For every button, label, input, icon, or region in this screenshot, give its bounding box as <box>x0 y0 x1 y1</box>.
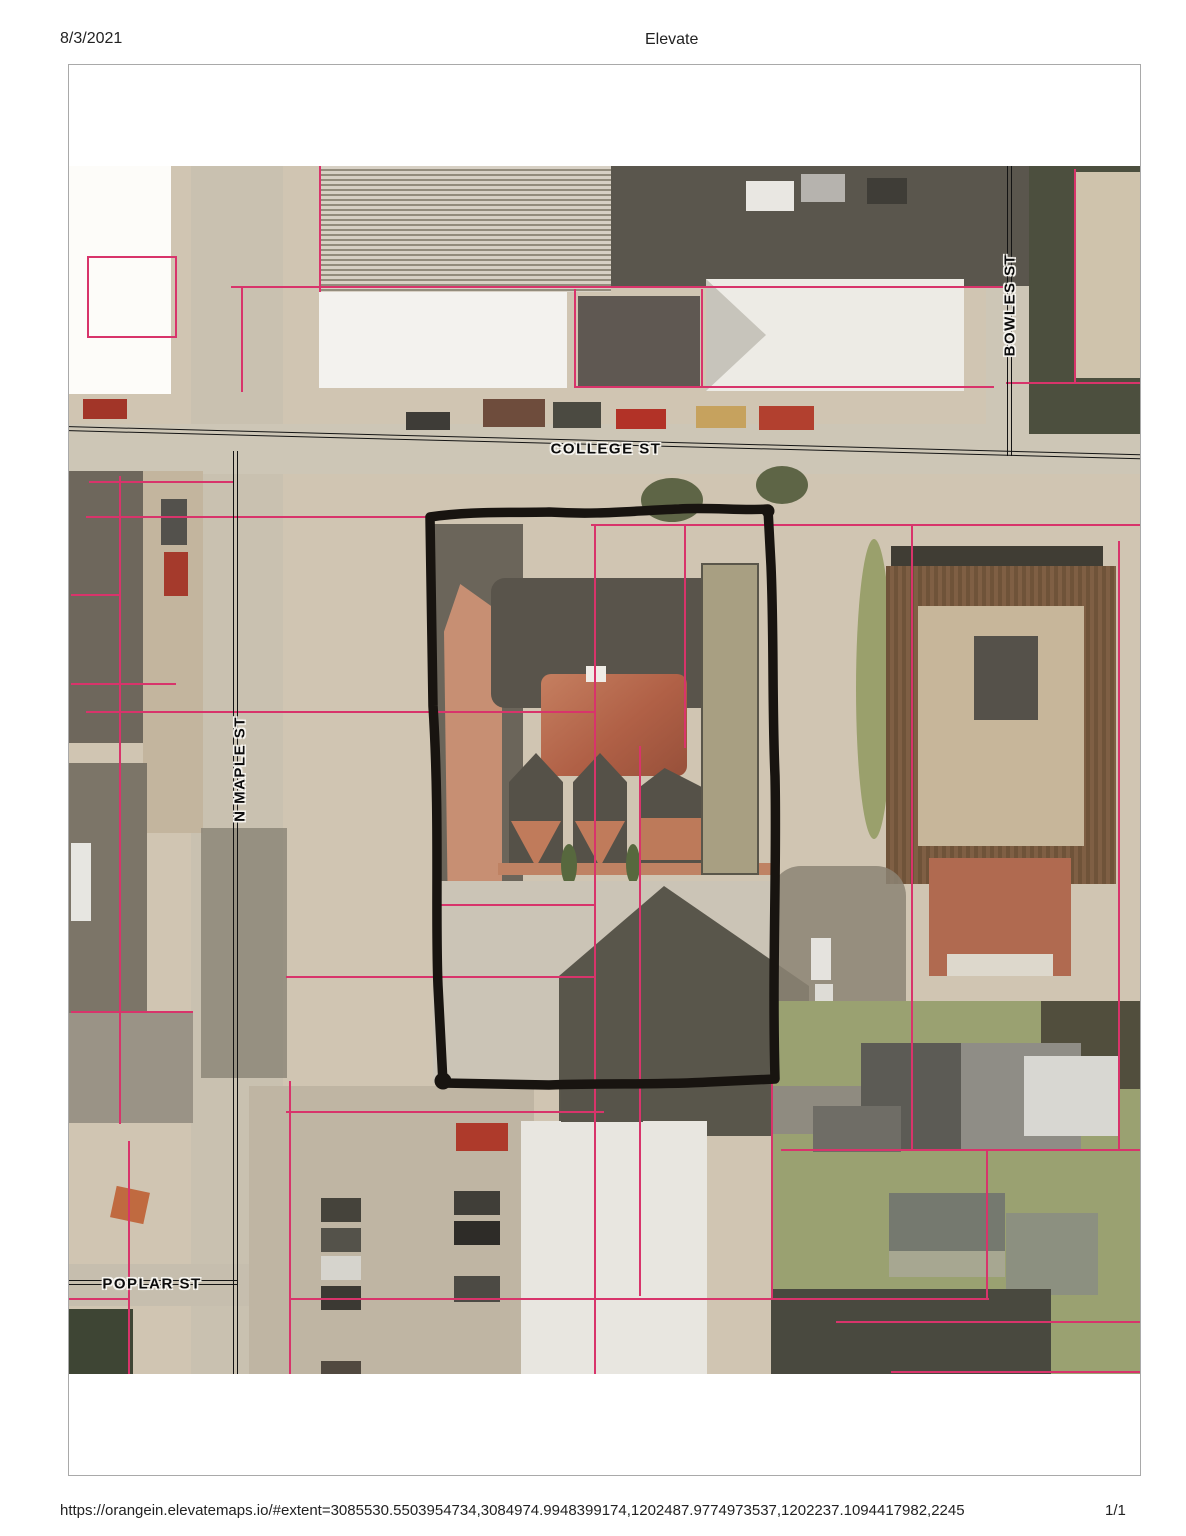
aerial-imagery: COLLEGE ST N MAPLE ST BOWLES ST POPLAR S… <box>69 166 1140 1374</box>
map-frame: COLLEGE ST N MAPLE ST BOWLES ST POPLAR S… <box>68 64 1141 1476</box>
page-number: 1/1 <box>1105 1502 1126 1519</box>
page-title: Elevate <box>645 31 698 49</box>
street-label-bowles: BOWLES ST <box>1002 254 1019 357</box>
street-label-n-maple: N MAPLE ST <box>232 716 249 822</box>
print-url: https://orangein.elevatemaps.io/#extent=… <box>60 1502 965 1519</box>
street-label-poplar: POPLAR ST <box>102 1276 201 1293</box>
street-label-college: COLLEGE ST <box>551 441 662 458</box>
print-date: 8/3/2021 <box>60 30 122 48</box>
subject-property-outline <box>69 166 1140 1374</box>
